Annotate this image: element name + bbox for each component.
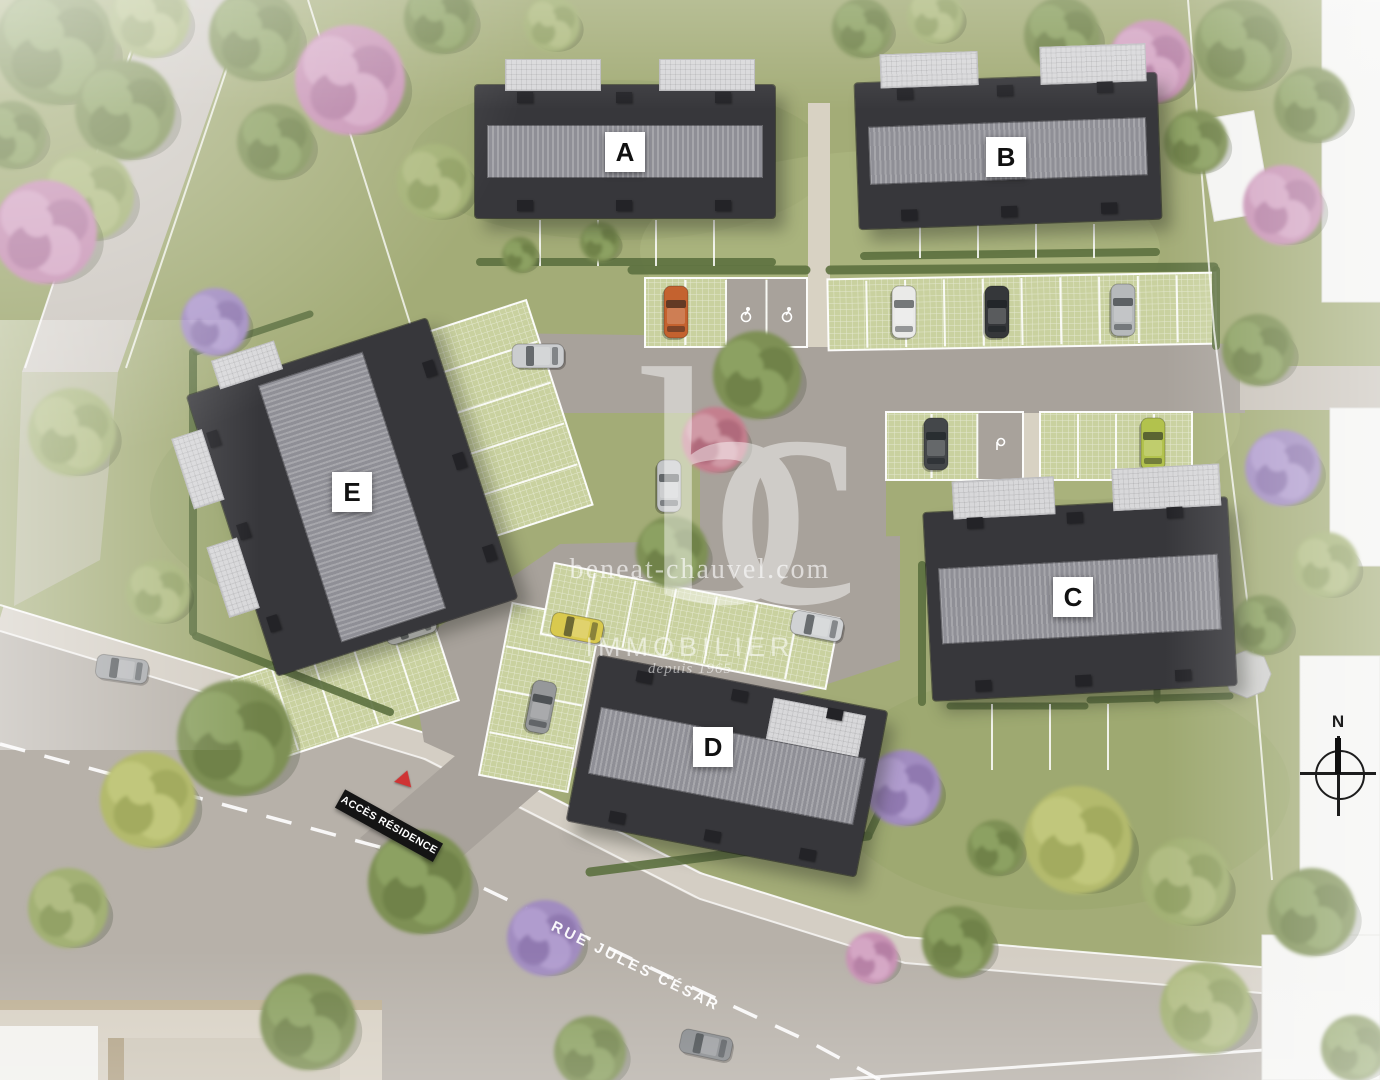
tree xyxy=(580,222,620,262)
tree xyxy=(1268,868,1356,956)
car xyxy=(662,286,688,340)
tree xyxy=(1245,430,1321,506)
dormer xyxy=(206,430,221,449)
tree xyxy=(1232,595,1292,655)
dormer xyxy=(1100,202,1116,214)
tree xyxy=(1293,532,1359,598)
roof-terrace xyxy=(659,59,755,91)
site-plan: A B C D E bc beneat-chauvel.com IMMOBILI… xyxy=(0,0,1380,1080)
dormer xyxy=(266,614,281,633)
compass: N xyxy=(1298,712,1378,816)
tree xyxy=(28,388,116,476)
tree xyxy=(1142,838,1230,926)
car xyxy=(1109,284,1135,338)
tree xyxy=(636,516,708,588)
dormer xyxy=(1096,81,1112,93)
tree xyxy=(967,820,1023,876)
hedge xyxy=(864,252,1156,256)
tree xyxy=(126,560,190,624)
tree xyxy=(237,104,313,180)
dormer xyxy=(236,522,251,541)
building-label-a: A xyxy=(605,132,645,172)
dormer xyxy=(422,360,437,379)
tree xyxy=(181,288,249,356)
roof-terrace xyxy=(952,476,1056,519)
tree xyxy=(1024,786,1132,894)
dormer xyxy=(616,200,632,211)
roof-terrace xyxy=(1111,464,1221,512)
hedge xyxy=(1090,696,1230,700)
tree xyxy=(1164,110,1228,174)
car xyxy=(983,286,1009,340)
roof-terrace xyxy=(1039,43,1146,85)
tree xyxy=(922,906,994,978)
tree xyxy=(1243,165,1323,245)
footpath xyxy=(808,103,830,347)
car xyxy=(512,344,566,370)
hedge xyxy=(830,267,1214,270)
tree xyxy=(1160,962,1252,1054)
tree xyxy=(397,144,473,220)
dormer xyxy=(897,88,913,100)
compass-north-label: N xyxy=(1298,712,1378,732)
dormer xyxy=(1001,206,1017,218)
compass-needle-icon xyxy=(1335,738,1341,774)
dormer xyxy=(731,689,749,703)
neighbor-building xyxy=(1322,0,1380,302)
car xyxy=(655,460,681,514)
tree xyxy=(713,331,801,419)
tree xyxy=(1194,0,1286,91)
tree xyxy=(846,932,898,984)
tree xyxy=(75,60,175,160)
dormer xyxy=(517,200,533,211)
tree xyxy=(100,752,196,848)
tree xyxy=(832,0,892,58)
dormer xyxy=(715,92,731,103)
building-label-e: E xyxy=(332,472,372,512)
dormer xyxy=(997,85,1013,97)
dormer xyxy=(616,92,632,103)
tree xyxy=(177,680,293,796)
dormer xyxy=(482,544,497,563)
dormer xyxy=(799,848,817,862)
dormer xyxy=(966,517,983,529)
roof-terrace xyxy=(880,51,979,88)
building-label-c: C xyxy=(1053,577,1093,617)
building-label-d: D xyxy=(693,727,733,767)
tree xyxy=(260,974,356,1070)
building-label-b: B xyxy=(986,137,1026,177)
car xyxy=(922,418,948,472)
dormer xyxy=(901,209,917,221)
tree xyxy=(502,237,538,273)
car xyxy=(1139,418,1165,472)
dormer xyxy=(636,670,654,684)
tree xyxy=(28,868,108,948)
car xyxy=(890,286,916,340)
dormer xyxy=(517,92,533,103)
dormer xyxy=(1167,507,1184,519)
dormer xyxy=(704,829,722,843)
tree xyxy=(682,407,748,473)
tree xyxy=(295,25,405,135)
dormer xyxy=(1066,512,1083,524)
tree xyxy=(1274,67,1350,143)
dormer xyxy=(608,811,626,825)
dormer xyxy=(452,452,467,471)
dormer xyxy=(1075,675,1092,687)
roof-terrace xyxy=(505,59,601,91)
dormer xyxy=(975,680,992,692)
parking-stalls xyxy=(827,273,1216,351)
dormer xyxy=(715,200,731,211)
tree xyxy=(1222,314,1294,386)
dormer xyxy=(1175,669,1192,681)
